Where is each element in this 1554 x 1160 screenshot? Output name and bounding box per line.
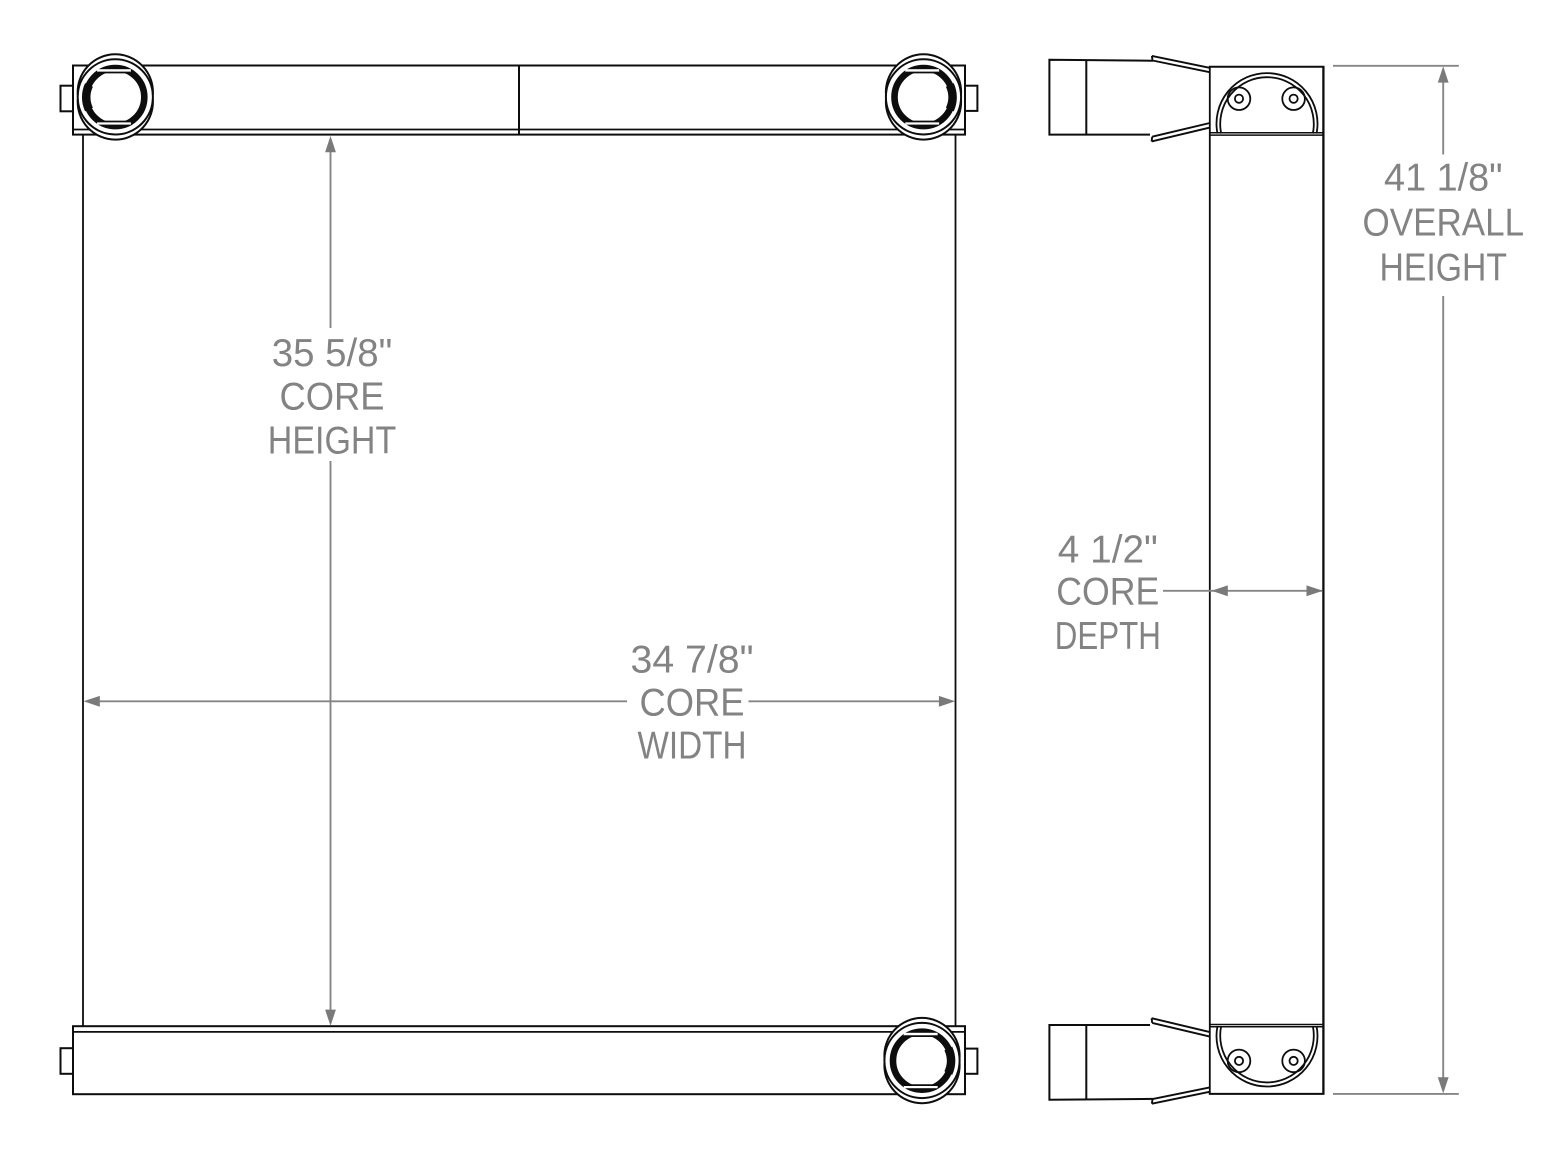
svg-text:OVERALL: OVERALL [1363, 202, 1525, 245]
svg-text:34 7/8": 34 7/8" [631, 638, 754, 681]
svg-text:CORE: CORE [1056, 571, 1159, 614]
svg-text:CORE: CORE [640, 681, 745, 724]
svg-text:41 1/8": 41 1/8" [1384, 157, 1503, 200]
svg-text:DEPTH: DEPTH [1055, 615, 1161, 658]
svg-text:35 5/8": 35 5/8" [272, 332, 393, 375]
svg-text:HEIGHT: HEIGHT [1380, 247, 1508, 290]
svg-text:CORE: CORE [280, 375, 385, 418]
svg-text:4 1/2": 4 1/2" [1058, 529, 1158, 572]
svg-text:WIDTH: WIDTH [638, 725, 747, 768]
svg-text:HEIGHT: HEIGHT [268, 419, 397, 462]
